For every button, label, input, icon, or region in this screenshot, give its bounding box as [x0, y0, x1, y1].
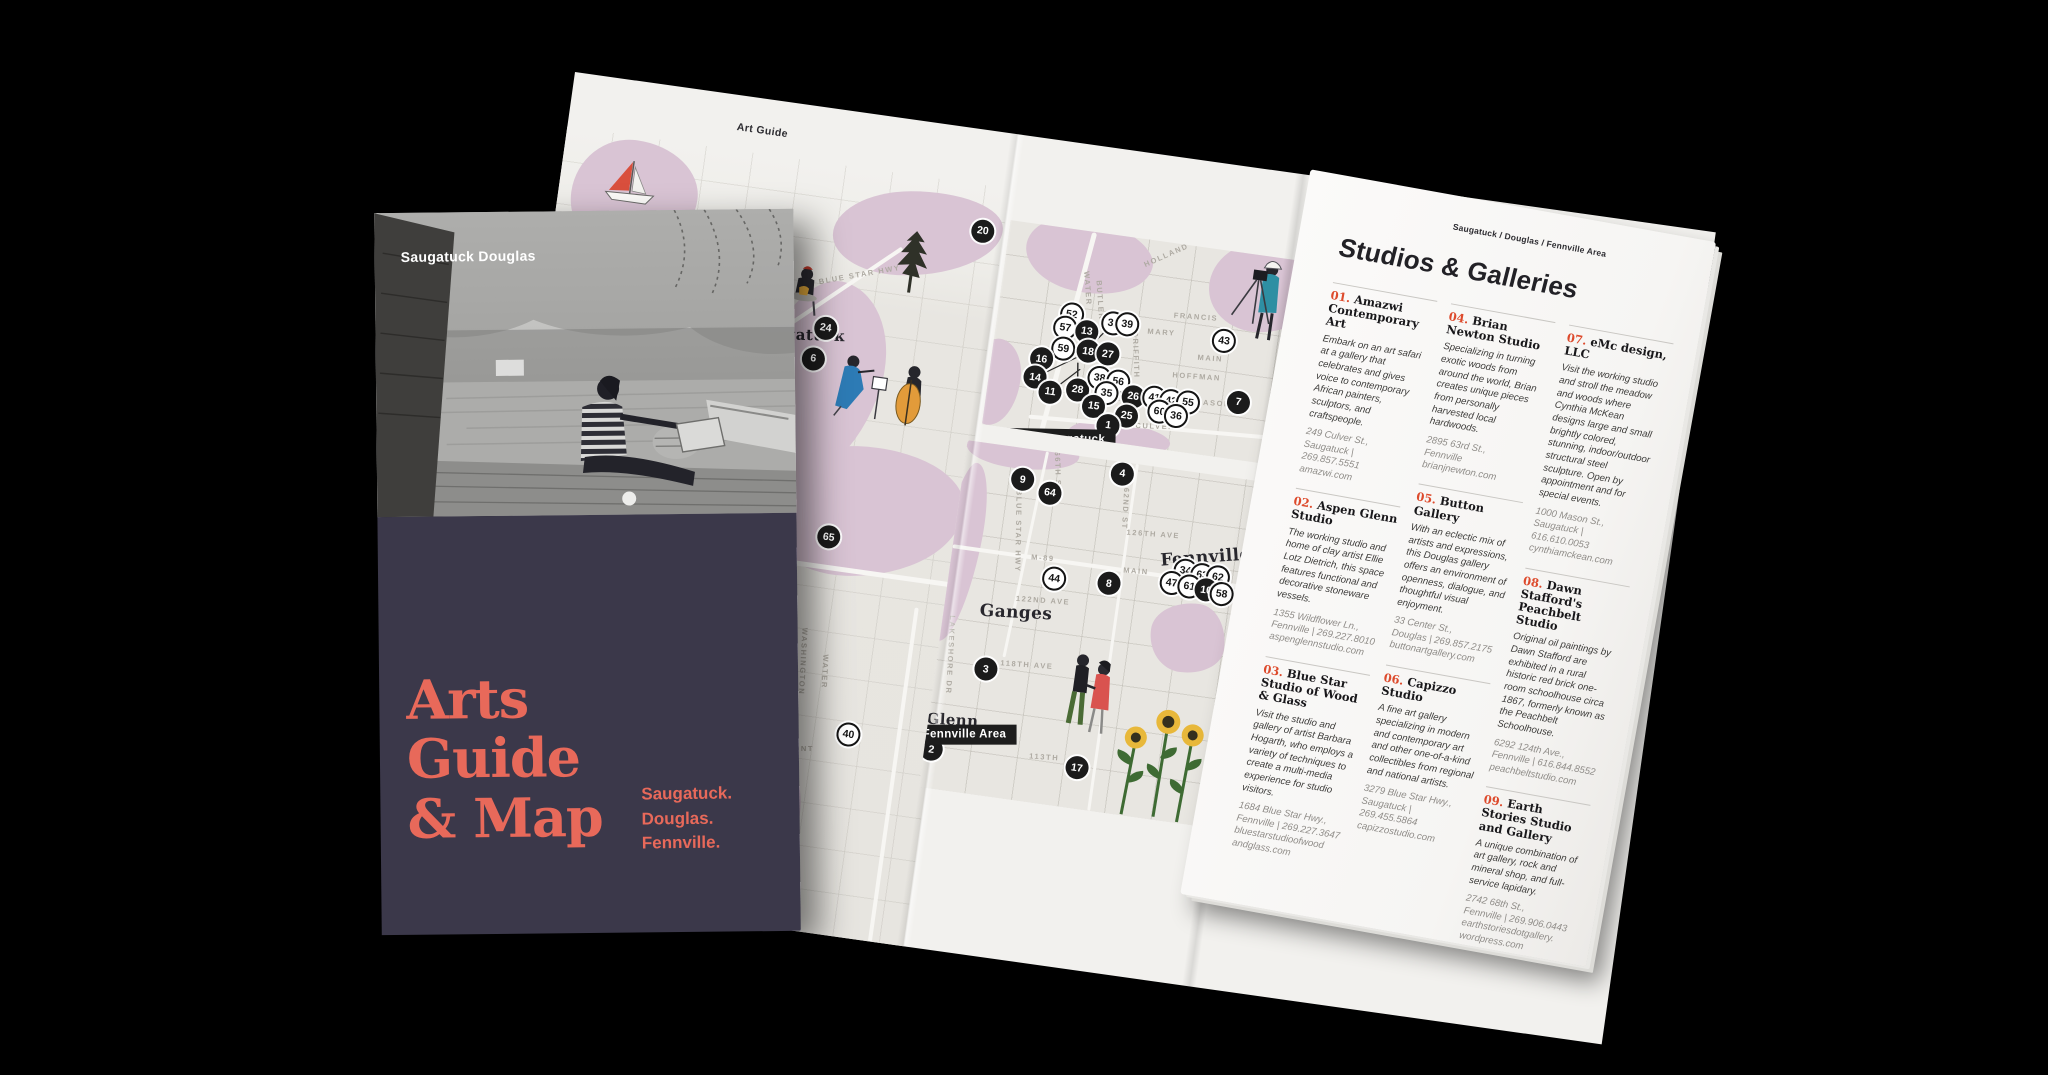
map-marker-3: 3: [973, 656, 999, 682]
listing-entry: 05. Button GalleryWith an eclectic mix o…: [1388, 484, 1523, 671]
street-label: M-89: [1031, 553, 1055, 564]
street-label: WASHINGTON: [797, 628, 810, 696]
listing-entry: 09. Earth Stories Studio and GalleryA un…: [1458, 786, 1590, 960]
listing-address: 1000 Mason St., Saugatuck | 616.610.0053…: [1528, 505, 1641, 573]
listing-columns: 01. Amazwi Contemporary ArtEmbark on an …: [1220, 282, 1674, 973]
listing-entry: 08. Dawn Stafford's Peachbelt StudioOrig…: [1488, 567, 1629, 792]
map-marker-9: 9: [1010, 466, 1036, 492]
listing-description: Embark on an art safari at a gallery tha…: [1308, 333, 1428, 439]
cover-bottom-panel: Arts Guide & Map Saugatuck. Douglas. Fen…: [377, 513, 800, 935]
listing-description: The working studio and home of clay arti…: [1276, 526, 1394, 620]
street-label: MAIN: [1123, 566, 1149, 577]
listing-entry: 07. eMc design, LLCVisit the working stu…: [1528, 325, 1674, 574]
map-marker-4: 4: [1109, 461, 1135, 487]
cover-photo: Saugatuck Douglas: [374, 209, 796, 517]
listing-description: Visit the working studio and stroll the …: [1538, 362, 1667, 518]
listing-description: Specializing in turning exotic woods fro…: [1429, 341, 1549, 447]
listing-description: Visit the studio and gallery of artist B…: [1241, 707, 1361, 813]
cover-title: Arts Guide & Map: [406, 669, 603, 849]
street-label: BLUE STAR HWY: [1013, 490, 1023, 573]
listing-description: A fine art gallery specializing in moder…: [1366, 702, 1484, 796]
listing-address: 249 Culver St., Saugatuck | 269.857.5551…: [1298, 426, 1411, 494]
map-marker-44: 44: [1041, 565, 1068, 592]
mockup-stage: Art Guide: [0, 0, 2048, 1075]
listing-entry: 01. Amazwi Contemporary ArtEmbark on an …: [1298, 282, 1437, 494]
listing-entry: 02. Aspen Glenn StudioThe working studio…: [1268, 488, 1400, 662]
listing-entry: 06. Capizzo StudioA fine art gallery spe…: [1356, 664, 1490, 850]
street-label: WATER: [819, 654, 830, 689]
map-label-fennville-area: Fennville Area: [919, 725, 1017, 745]
road: [868, 608, 919, 942]
place-label: Ganges: [979, 601, 1053, 625]
cover-subtitle: Saugatuck. Douglas. Fennville.: [641, 781, 732, 856]
cover-photo-label: Saugatuck Douglas: [401, 248, 536, 265]
listing-entry: 04. Brian Newton StudioSpecializing in t…: [1421, 303, 1556, 490]
listing-description: With an eclectic mix of artists and expr…: [1396, 522, 1516, 628]
lake-blob: [1146, 597, 1231, 677]
map-marker-17: 17: [1064, 755, 1090, 781]
street-label: 118TH AVE: [1000, 658, 1054, 671]
page-header-art-guide: Art Guide: [736, 121, 789, 140]
listing-entry: 03. Blue Star Studio of Wood & GlassVisi…: [1231, 656, 1370, 868]
sailboat-icon: [598, 155, 666, 209]
walking-couple-icon: [1057, 648, 1120, 740]
brochure-cover: Saugatuck Douglas Arts Guide & Map Sauga…: [374, 209, 801, 935]
map-marker-40: 40: [835, 721, 862, 748]
listing-address: 2742 68th St., Fennville | 269.906.0443 …: [1458, 893, 1571, 961]
listing-address: 3279 Blue Star Hwy., Saugatuck | 269.455…: [1356, 783, 1469, 851]
street-label: 113TH: [1029, 751, 1060, 762]
pine-tree-icon: [888, 226, 939, 297]
street-label: 126TH AVE: [1126, 527, 1180, 540]
listing-address: 1684 Blue Star Hwy., Fennville | 269.227…: [1231, 800, 1344, 868]
listing-description: Original oil paintings by Dawn Stafford …: [1496, 631, 1618, 749]
